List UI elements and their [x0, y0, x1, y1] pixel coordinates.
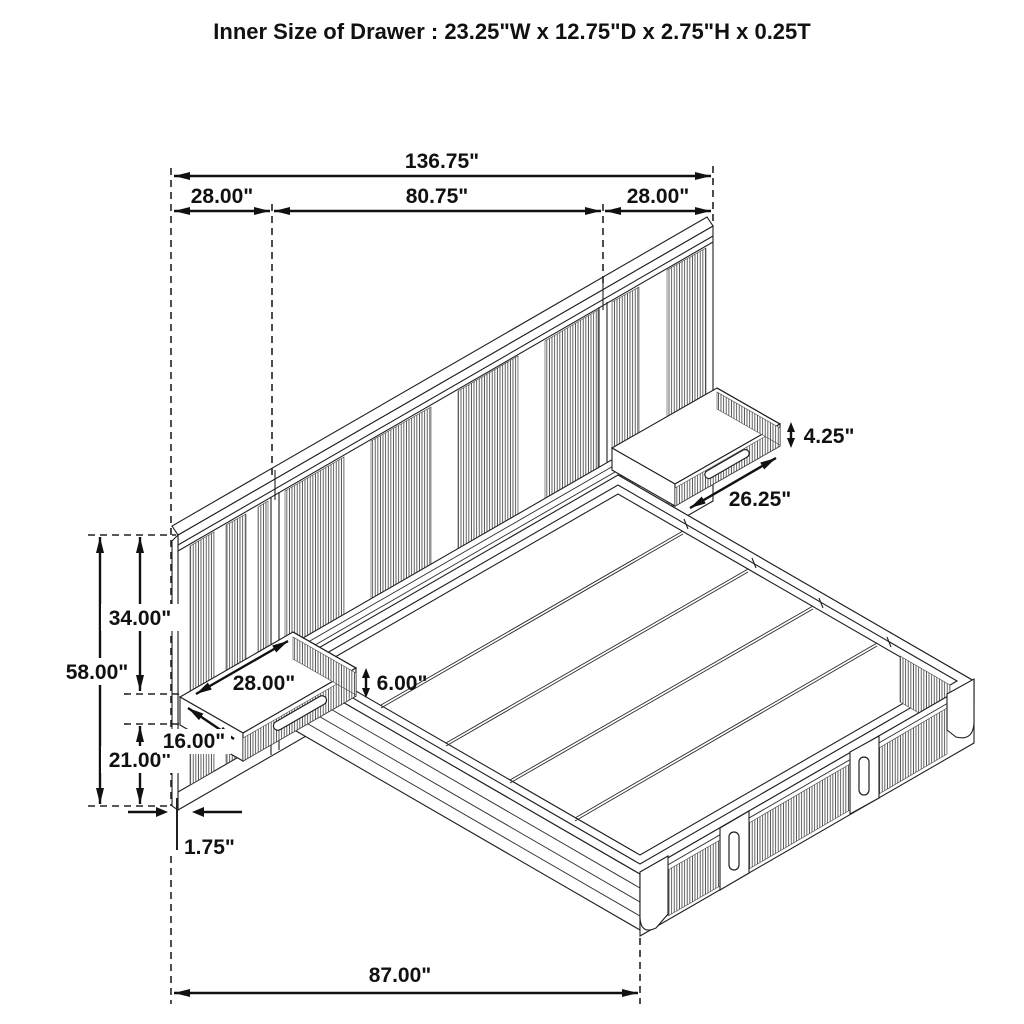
dim-panel-thickness-label: 1.75" — [184, 836, 235, 859]
dim-left-section: 28.00" — [174, 185, 270, 211]
dim-right-shelf-front-label: 26.25" — [729, 488, 792, 511]
dim-left-shelf-depth-label: 16.00" — [163, 730, 226, 753]
dim-wall-height-label: 58.00" — [66, 661, 129, 684]
dim-panel-thickness: 1.75" — [128, 798, 242, 859]
dim-center-section: 80.75" — [274, 185, 601, 211]
dim-wall-upper-label: 34.00" — [109, 607, 172, 630]
footboard-handle-2-icon — [859, 757, 869, 795]
dim-right-shelf-height-label: 4.25" — [804, 425, 855, 448]
dim-center-section-label: 80.75" — [406, 185, 469, 208]
dim-total-width: 136.75" — [174, 150, 711, 176]
bed-technical-drawing: Inner Size of Drawer : 23.25"W x 12.75"D… — [0, 0, 1024, 1024]
dim-right-section-label: 28.00" — [627, 185, 690, 208]
dim-left-shelf-width-label: 28.00" — [233, 672, 296, 695]
drawing-title: Inner Size of Drawer : 23.25"W x 12.75"D… — [213, 19, 811, 44]
drawing-page: Inner Size of Drawer : 23.25"W x 12.75"D… — [0, 0, 1024, 1024]
dim-total-width-label: 136.75" — [405, 150, 479, 173]
dim-left-section-label: 28.00" — [191, 185, 254, 208]
dim-bed-span-label: 87.00" — [369, 964, 432, 987]
dim-right-section: 28.00" — [605, 185, 711, 211]
footboard-handle-1-icon — [729, 832, 739, 870]
dim-right-shelf-height: 4.25" — [787, 422, 854, 448]
dim-left-shelf-height-label: 6.00" — [377, 672, 428, 695]
dim-bed-span: 87.00" — [174, 964, 638, 993]
